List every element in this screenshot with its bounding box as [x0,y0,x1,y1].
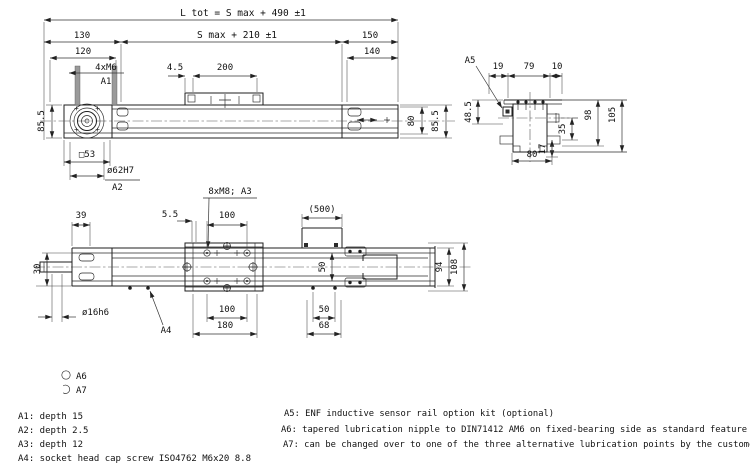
dim-180: 180 [193,294,257,338]
dim-108-text: 108 [450,259,460,275]
legend: A6 A7 A1: depth 15 A2: depth 2.5 A3: dep… [18,371,750,464]
ref-a4-text: A4 [161,326,172,336]
side-view-carriage [185,93,263,108]
dim-30: 30 [33,253,72,286]
dim-68-text: 68 [319,321,330,331]
ref-a1-text: A1 [101,77,112,87]
dim-10: 10 [550,62,562,76]
dim-500: (500) [302,205,342,227]
ref-a2-text: A2 [112,183,123,193]
a7-symbol-icon [63,385,70,393]
dim-94-text: 94 [435,262,445,273]
dim-39: 39 [72,211,90,246]
dim-bore-62h7-text: ø62H7 [107,166,134,176]
note-a6: A6: tapered lubrication nipple to DIN714… [281,425,747,435]
dim-105-text: 105 [608,107,618,123]
dim-200-text: 200 [217,63,233,73]
dim-79-text: 79 [524,62,535,72]
dim-50-center-text: 50 [318,262,328,273]
dim-19-text: 19 [493,62,504,72]
m6-stud-left [75,66,80,105]
side-view-body [40,105,455,138]
dim-19: 19 [489,62,508,76]
dim-130-text: 130 [74,31,90,41]
dim-120: 120 [50,47,116,58]
dim-140-text: 140 [364,47,380,57]
dim-80-body: 80 [400,107,428,134]
note-a2: A2: depth 2.5 [18,426,88,436]
dim-total-length-text: L tot = S max + 490 ±1 [180,8,306,19]
dim-80-end-text: 80 [527,150,538,160]
dim-140: 140 [347,47,398,58]
end-view-extension-lines [489,73,562,98]
note-a7: A7: can be changed over to one of the th… [283,440,750,450]
dim-35: 35 [558,118,578,140]
dim-105: 105 [608,100,622,152]
note-a1: A1: depth 15 [18,412,83,422]
dim-79: 79 [508,62,550,76]
dim-5-5-text: 5.5 [162,210,178,220]
dim-500-text: (500) [308,205,335,215]
dim-100-bottom: 100 [207,294,247,322]
dim-50-right-text: 50 [319,305,330,315]
end-view: 19 79 10 A5 48.5 98 105 [464,56,627,165]
dim-180-text: 180 [217,321,233,331]
dim-10-text: 10 [552,62,563,72]
dim-100-top-text: 100 [219,211,235,221]
dim-stroke: S max + 210 ±1 [121,30,342,42]
plan-view: 39 5.5 8xM8; A3 100 (500) [33,187,472,338]
note-a4: A4: socket head cap screw ISO4762 M6x20 … [18,454,251,464]
dim-98: 98 [562,100,604,146]
dim-total-length: L tot = S max + 490 ±1 [44,8,398,20]
dim-square-53-text: □53 [79,150,95,160]
dim-shaft-16h6-text: ø16h6 [82,308,109,318]
label-8xm8-text: 8xM8; A3 [208,187,251,197]
dim-150-text: 150 [362,31,378,41]
a6-symbol-label: A6 [76,372,87,382]
dim-80-body-text: 80 [407,116,417,127]
dim-5-5: 5.5 [162,210,196,242]
dim-17-text: 17 [538,144,548,155]
dim-130: 130 [44,31,121,42]
note-a3: A3: depth 12 [18,440,83,450]
alt-position-block-500 [302,228,342,248]
dim-4-5-text: 4.5 [167,63,183,73]
dim-30-text: 30 [33,264,43,275]
dim-48-5-text: 48.5 [464,101,474,123]
dim-square-53: □53 [64,140,110,166]
dim-stroke-text: S max + 210 ±1 [197,30,277,41]
dim-17: 17 [538,140,558,157]
dim-48-5: 48.5 [464,100,503,124]
sensor-rail-a5-core [506,110,510,114]
drawing-canvas: L tot = S max + 490 ±1 130 S max + 210 ±… [0,0,750,470]
note-a5: A5: ENF inductive sensor rail option kit… [284,409,554,419]
dim-50-right: 50 [313,292,335,322]
dim-50-center: 50 [318,253,332,281]
dim-85-5-left: 85.5 [37,105,62,138]
dim-4-5: 4.5 [167,63,185,76]
dim-150: 150 [342,31,398,42]
label-4xm6-text: 4xM6 [95,63,117,73]
dim-39-text: 39 [76,211,87,221]
side-view: L tot = S max + 490 ±1 130 S max + 210 ±… [37,8,455,193]
a7-symbol-label: A7 [76,386,87,396]
dim-200: 200 [193,63,257,76]
dim-85-5-right-text: 85.5 [431,110,441,132]
dim-85-5-left-text: 85.5 [37,110,47,132]
a6-symbol-icon [62,371,70,379]
dim-120-text: 120 [75,47,91,57]
ref-a5-text: A5 [465,56,476,66]
technical-drawing-page: L tot = S max + 490 ±1 130 S max + 210 ±… [0,0,750,470]
dim-35-text: 35 [558,124,568,135]
dim-98-text: 98 [584,110,594,121]
dim-100-bottom-text: 100 [219,305,235,315]
ref-a4: A4 [150,291,171,336]
